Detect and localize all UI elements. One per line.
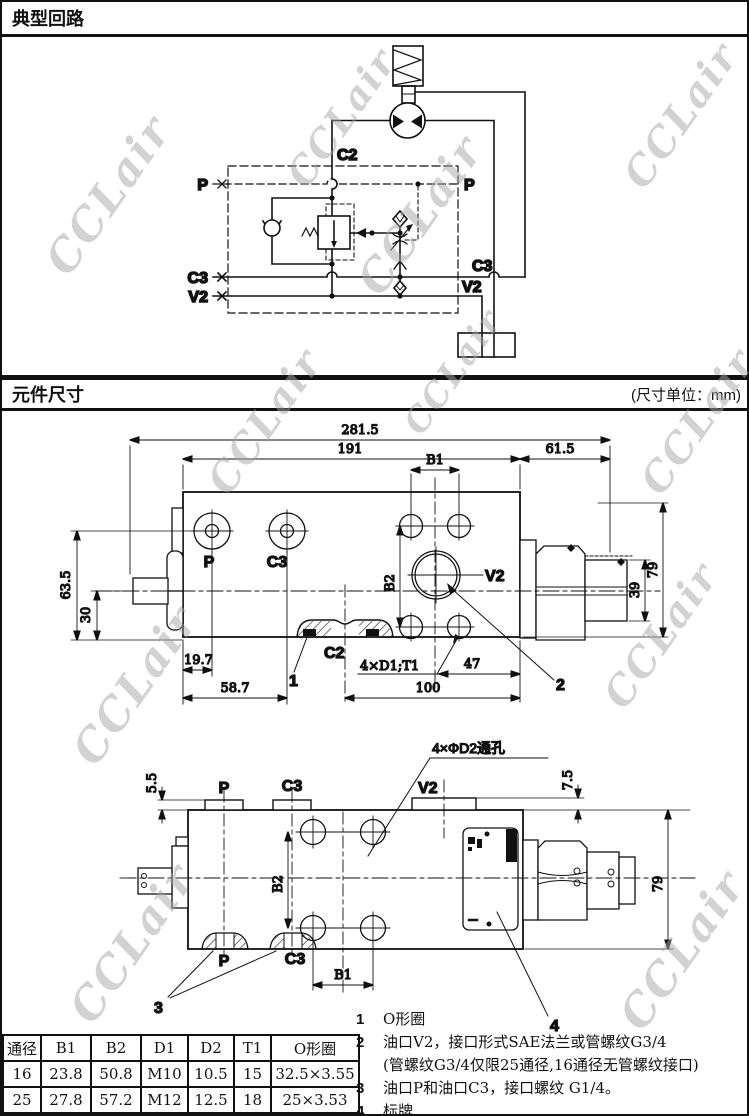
circuit-label-c3-left: C3 bbox=[188, 270, 209, 287]
dim-b1: B1 bbox=[426, 453, 444, 468]
front-view-drawing: 4×ΦD2通孔 5.5 7.5 79 B2 B1 P C3 V2 P C3 3 … bbox=[0, 713, 749, 1045]
manifold-block-symbol bbox=[458, 333, 515, 357]
top-view-drawing: 281.5 191 61.5 B1 B2 63.5 30 79 39 19.7 … bbox=[0, 411, 749, 713]
dim-7-5: 7.5 bbox=[561, 770, 576, 791]
circuit-label-v2-right: V2 bbox=[462, 279, 482, 296]
dim-58-7: 58.7 bbox=[221, 681, 250, 696]
note-item-4: 4 标牌 bbox=[356, 1100, 748, 1116]
port-label-v2: V2 bbox=[418, 780, 438, 797]
circuit-label-c3-right: C3 bbox=[472, 258, 493, 275]
port-label-c3-top: C3 bbox=[282, 778, 303, 795]
col-header: T1 bbox=[234, 1035, 271, 1061]
note-item-2-continued: (管螺纹G3/4仅限25通径,16通径无管螺纹接口) bbox=[356, 1054, 748, 1077]
table-cell: 10.5 bbox=[188, 1061, 234, 1087]
port-label-c2: C2 bbox=[324, 645, 345, 662]
note-text: 油口V2，接口形式SAE法兰或管螺纹G3/4 bbox=[383, 1031, 748, 1054]
note-item-2: 2 油口V2，接口形式SAE法兰或管螺纹G3/4 bbox=[356, 1031, 748, 1054]
page-title: 典型回路 bbox=[12, 5, 84, 31]
unit-label: (尺寸单位：mm) bbox=[631, 384, 741, 405]
col-header: 通径 bbox=[3, 1035, 41, 1061]
port-label-p: P bbox=[204, 554, 215, 571]
dim-hole-spec: 4×D1;T1 bbox=[360, 659, 419, 674]
note-number: 2 bbox=[356, 1031, 383, 1054]
note-text: 标牌 bbox=[383, 1100, 748, 1116]
note-text: 油口P和油口C3，接口螺纹 G1/4。 bbox=[383, 1077, 748, 1100]
port-label-c3: C3 bbox=[267, 554, 288, 571]
through-hole-spec: 4×ΦD2通孔 bbox=[432, 740, 505, 756]
brake-cylinder-symbol bbox=[393, 46, 423, 103]
dim-body-width: 191 bbox=[338, 442, 363, 457]
note-number: 4 bbox=[356, 1100, 383, 1116]
note-number: 1 bbox=[356, 1008, 383, 1031]
circuit-label-c2: C2 bbox=[337, 147, 358, 164]
port-label-p-top: P bbox=[219, 780, 230, 797]
table-cell: M12 bbox=[141, 1087, 188, 1113]
table-cell: 57.2 bbox=[91, 1087, 141, 1113]
note-number: 3 bbox=[356, 1077, 383, 1100]
dim-5-5: 5.5 bbox=[145, 773, 160, 794]
table-cell: 50.8 bbox=[91, 1061, 141, 1087]
hydraulic-motor-symbol bbox=[390, 103, 425, 138]
port-label-c3-bottom: C3 bbox=[285, 951, 306, 968]
dim-100: 100 bbox=[416, 681, 441, 696]
note-text: O形圈 bbox=[383, 1008, 748, 1031]
section-header-typical-circuit: 典型回路 bbox=[0, 0, 749, 37]
section-header-dimensions: 元件尺寸 (尺寸单位：mm) bbox=[0, 377, 749, 411]
col-header: D2 bbox=[188, 1035, 234, 1061]
port-label-v2: V2 bbox=[485, 568, 505, 585]
dim-30: 30 bbox=[79, 607, 94, 624]
throttle-check-branch bbox=[391, 211, 413, 299]
leader-label-2: 2 bbox=[556, 677, 565, 694]
leader-label-1: 1 bbox=[289, 673, 298, 690]
nameplate bbox=[463, 828, 518, 930]
dim-63-5: 63.5 bbox=[59, 571, 74, 600]
note-item-1: 1 O形圈 bbox=[356, 1008, 748, 1031]
dimensions-title: 元件尺寸 bbox=[12, 381, 84, 407]
col-header: B2 bbox=[91, 1035, 141, 1061]
dim-39: 39 bbox=[628, 582, 643, 599]
col-header: B1 bbox=[41, 1035, 91, 1061]
port-label-p-bottom: P bbox=[219, 953, 230, 970]
dim-total-width: 281.5 bbox=[341, 423, 378, 438]
catalog-page: CCLair CCLair CCLair CCLair CCLair CCLai… bbox=[0, 0, 749, 1116]
dimension-spec-table: 通径 B1 B2 D1 D2 T1 O形圈 16 23.8 50.8 M10 1… bbox=[2, 1034, 360, 1114]
table-cell: 25 bbox=[3, 1087, 41, 1113]
table-cell: 25×3.53 bbox=[271, 1087, 359, 1113]
cartridge-valve-side bbox=[523, 840, 635, 920]
table-cell: 18 bbox=[234, 1087, 271, 1113]
table-cell: M10 bbox=[141, 1061, 188, 1087]
dim-cartridge-width: 61.5 bbox=[546, 442, 575, 457]
table-cell: 27.8 bbox=[41, 1087, 91, 1113]
dim-b2: B2 bbox=[383, 574, 398, 592]
col-header: D1 bbox=[141, 1035, 188, 1061]
circuit-label-p-left: P bbox=[197, 177, 208, 194]
table-cell: 12.5 bbox=[188, 1087, 234, 1113]
notes-list: 1 O形圈 2 油口V2，接口形式SAE法兰或管螺纹G3/4 (管螺纹G3/4仅… bbox=[356, 1008, 748, 1116]
circuit-wiring bbox=[213, 92, 525, 357]
table-header-row: 通径 B1 B2 D1 D2 T1 O形圈 bbox=[3, 1035, 359, 1061]
table-cell: 15 bbox=[234, 1061, 271, 1087]
hydraulic-circuit-diagram: C2 P P C3 V2 C3 V2 bbox=[0, 36, 749, 377]
table-row: 16 23.8 50.8 M10 10.5 15 32.5×3.55 bbox=[3, 1061, 359, 1087]
dim-79: 79 bbox=[651, 876, 666, 893]
dim-79: 79 bbox=[646, 562, 661, 579]
dim-19-7: 19.7 bbox=[184, 653, 213, 668]
counterbalance-valve-symbol bbox=[302, 204, 400, 260]
table-cell: 23.8 bbox=[41, 1061, 91, 1087]
table-cell: 32.5×3.55 bbox=[271, 1061, 359, 1087]
circuit-label-p-right: P bbox=[464, 177, 475, 194]
col-header: O形圈 bbox=[271, 1035, 359, 1061]
dim-b1: B1 bbox=[334, 968, 352, 983]
table-row: 25 27.8 57.2 M12 12.5 18 25×3.53 bbox=[3, 1087, 359, 1113]
dim-47: 47 bbox=[464, 657, 481, 672]
dim-b2: B2 bbox=[271, 875, 286, 893]
leader-label-3: 3 bbox=[154, 1000, 163, 1017]
table-cell: 16 bbox=[3, 1061, 41, 1087]
circuit-label-v2-left: V2 bbox=[188, 289, 208, 306]
note-item-3: 3 油口P和油口C3，接口螺纹 G1/4。 bbox=[356, 1077, 748, 1100]
cartridge-valve-side bbox=[520, 540, 632, 640]
